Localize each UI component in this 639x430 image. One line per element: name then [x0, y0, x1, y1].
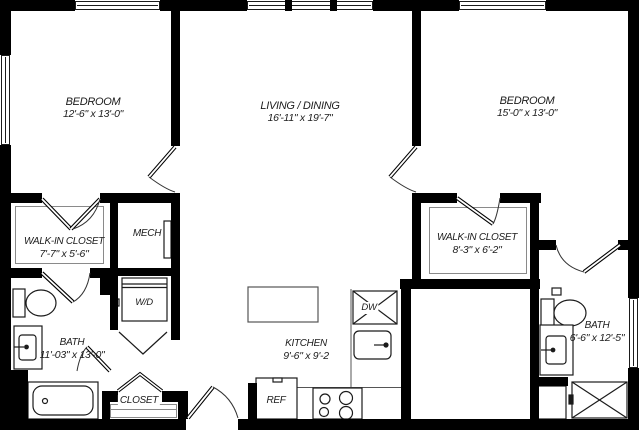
double-door-walkin-closet-left	[42, 199, 100, 229]
label-bath-left: BATH 11'-03" x 13'-0"	[40, 337, 105, 361]
label-entry-closet: CLOSET	[118, 395, 160, 407]
label-bedroom-left: BEDROOM 12'-6" x 13'-0"	[63, 96, 123, 120]
mech-door-panel	[164, 221, 171, 258]
entry-door	[188, 387, 238, 418]
kitchen-island	[248, 287, 318, 322]
label-walkin-closet-right: WALK-IN CLOSET 8'-3" x 6'-2"	[437, 232, 517, 256]
bifold-washer-dryer	[119, 332, 167, 354]
label-bedroom-right: BEDROOM 15'-0" x 13'-0"	[497, 95, 557, 119]
window-bedroom-right-top	[460, 2, 546, 10]
window-bedroom-left-top	[76, 2, 160, 10]
label-bath-right: BATH 6'-6" x 12'-5"	[570, 320, 625, 344]
label-walkin-closet-left: WALK-IN CLOSET 7'-7" x 5'-6"	[24, 236, 104, 260]
label-refrigerator: REF	[266, 395, 285, 407]
bathtub	[28, 382, 98, 419]
stove	[313, 388, 362, 420]
door-bath-right	[556, 245, 620, 272]
door-walkin-closet-right	[457, 198, 500, 224]
label-washer-dryer: W/D	[135, 297, 153, 309]
floor-plan-drawing	[0, 0, 639, 430]
label-mech: MECH	[133, 228, 161, 240]
shower	[569, 382, 627, 418]
bifold-entry-closet	[118, 374, 162, 391]
paper-holder-right	[552, 288, 561, 295]
label-dishwasher: DW	[359, 302, 378, 314]
kitchen-sink	[354, 331, 391, 359]
window-bath-right-side	[630, 299, 638, 368]
floor-plan: BEDROOM 12'-6" x 13'-0" LIVING / DINING …	[0, 0, 639, 430]
door-bedroom-right	[390, 147, 416, 192]
door-bedroom-left	[149, 147, 175, 192]
toilet-left	[13, 289, 56, 317]
label-living-dining: LIVING / DINING 16'-11" x 19'-7"	[260, 100, 339, 124]
label-kitchen: KITCHEN 9'-6" x 9'-2	[283, 338, 329, 362]
window-living-top	[248, 0, 373, 11]
sink-vanity-right	[540, 325, 573, 375]
window-bedroom-left-side	[2, 56, 10, 145]
sink-vanity-left	[14, 326, 42, 369]
